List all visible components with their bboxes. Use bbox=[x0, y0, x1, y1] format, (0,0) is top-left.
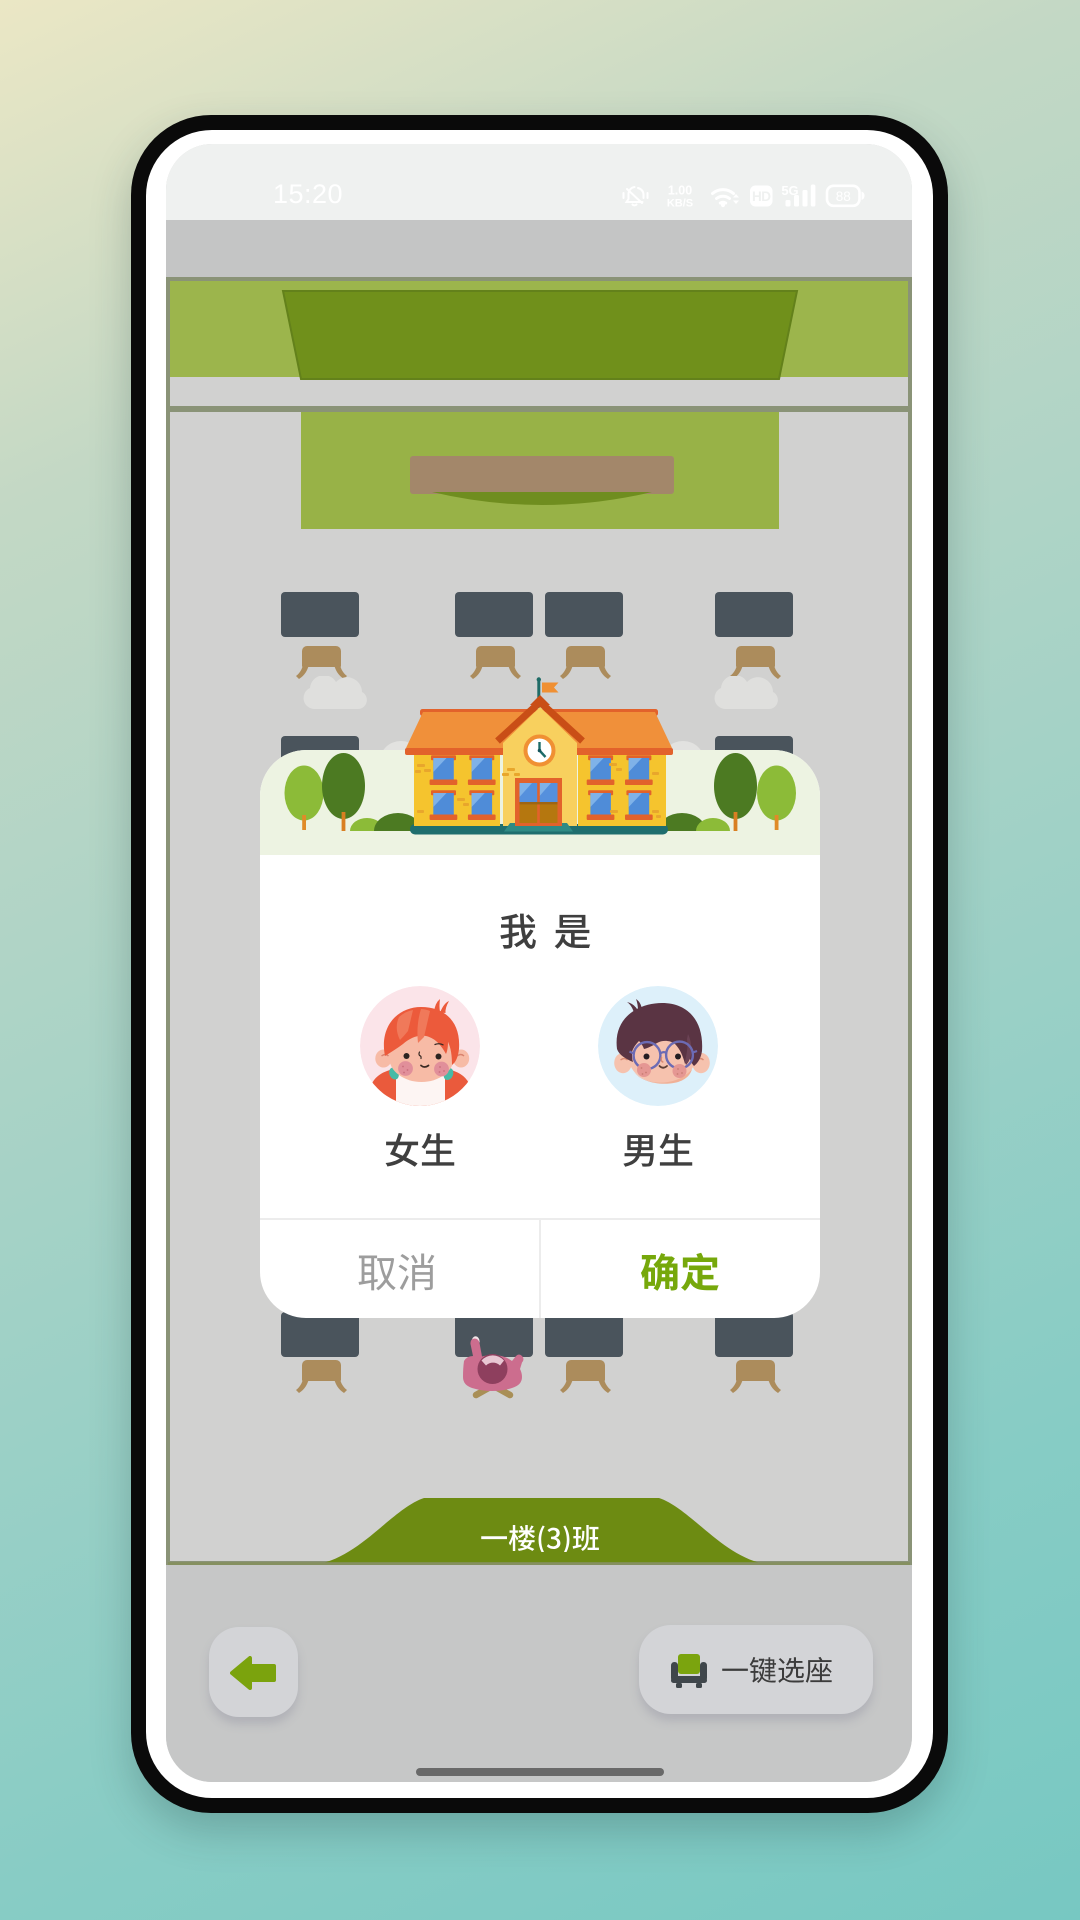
svg-text:KB/S: KB/S bbox=[667, 198, 693, 209]
svg-text:88: 88 bbox=[836, 189, 851, 204]
svg-text:HD: HD bbox=[752, 189, 771, 204]
svg-text:1.00: 1.00 bbox=[668, 184, 692, 198]
